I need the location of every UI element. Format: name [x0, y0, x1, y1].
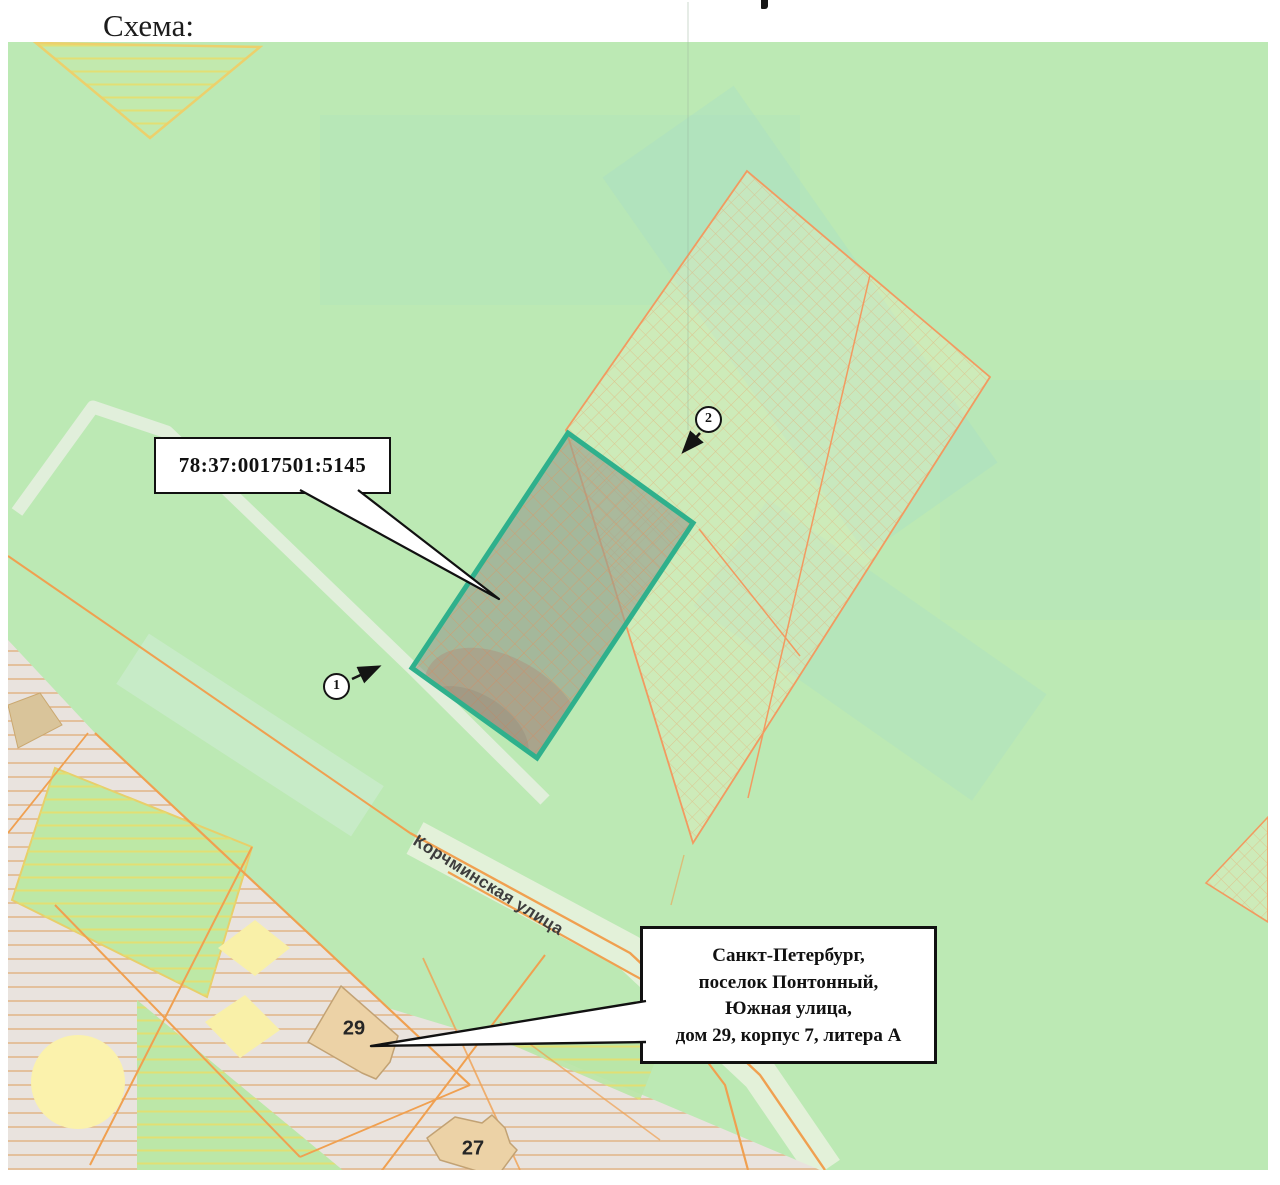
address-line: дом 29, корпус 7, литера А [643, 1023, 934, 1050]
point-marker-1: 1 [323, 673, 350, 700]
address-line: Санкт-Петербург, [643, 943, 934, 970]
address-callout: Санкт-Петербург, поселок Понтонный, Южна… [640, 926, 937, 1064]
cadastral-number: 78:37:0017501:5145 [179, 453, 366, 477]
scanned-map-page: Схема: [0, 0, 1280, 1185]
building-29-label: 29 [343, 1018, 365, 1041]
address-line: Южная улица, [643, 996, 934, 1023]
cropped-text-fragment [761, 0, 768, 9]
point-marker-2: 2 [695, 406, 722, 433]
yellow-circle-feature [31, 1035, 125, 1129]
building-27-label: 27 [462, 1138, 484, 1161]
cadastral-number-callout: 78:37:0017501:5145 [154, 437, 391, 494]
address-line: поселок Понтонный, [643, 970, 934, 997]
